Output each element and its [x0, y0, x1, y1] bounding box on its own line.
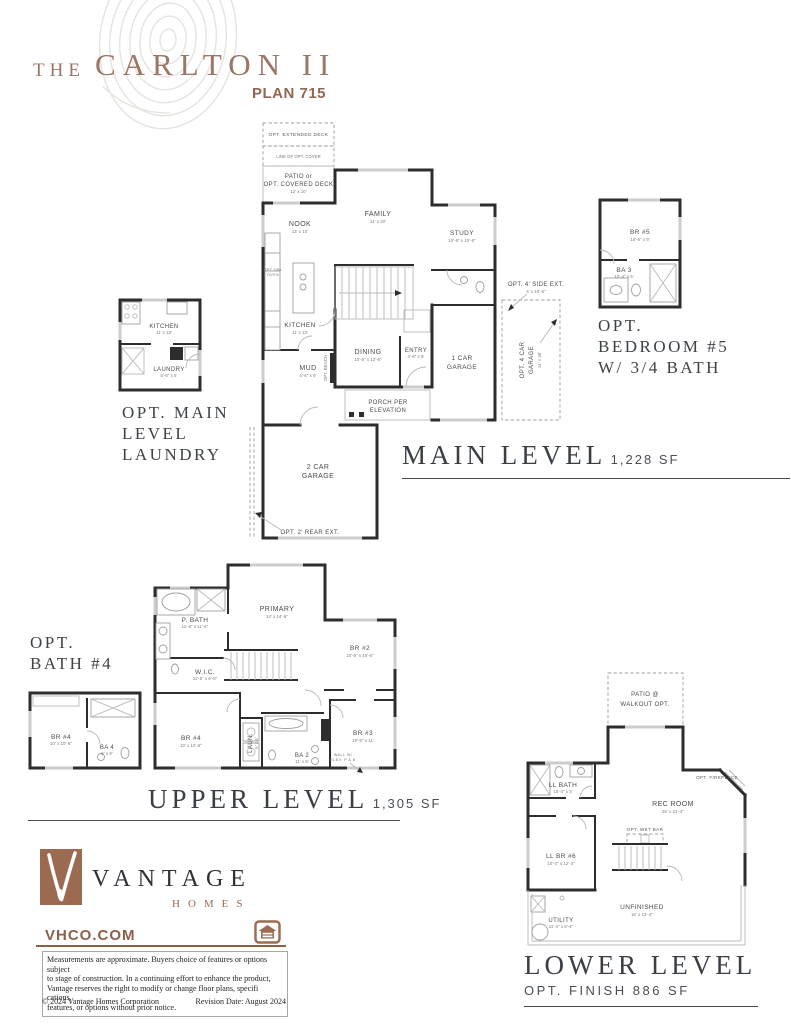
- room-dim-study: 10'-6" x 10'-6": [448, 238, 476, 243]
- main-level-title-block: MAIN LEVEL 1,228 SF: [402, 440, 679, 471]
- bedroom5-inset-plan: BR #5 10'-6" x 9' BA 3 10'-4" x 5': [588, 192, 693, 320]
- bedroom5-inset-caption: OPT. BEDROOM #5 W/ 3/4 BATH: [598, 315, 729, 378]
- room-label-opt-extended-deck: OPT. EXTENDED DECK: [269, 132, 329, 138]
- note-opt-side-ext: OPT. 4' SIDE EXT.: [508, 282, 564, 288]
- main-level-plan: OPT. EXTENDED DECK LINE OF OPT. COVER PA…: [240, 115, 615, 547]
- note-opt-fireplace: OPT. FIREPLACE: [696, 775, 738, 780]
- laundry-inset-plan: KITCHEN 11' x 13' LAUNDRY 5'-6" x 6': [112, 292, 207, 400]
- note-patio-walkout-2: WALKOUT OPT.: [620, 702, 669, 708]
- room-label-porch-2: ELEVATION: [370, 408, 406, 414]
- room-dim-kitchen: 11' x 13': [292, 330, 308, 335]
- bedroom5-inset-ba3-label: BA 3: [616, 267, 631, 274]
- bath4-inset-br4-dim: 10' x 10'-6": [50, 741, 72, 746]
- plan-title-prefix: THE: [33, 60, 85, 82]
- room-label-llbath: LL BATH: [549, 782, 577, 789]
- room-label-patio-1: PATIO or: [285, 174, 312, 180]
- room-label-dining: DINING: [355, 349, 382, 356]
- room-dim-dining: 10'-6" x 12'-6": [354, 357, 382, 362]
- bedroom5-inset-caption-1: OPT.: [598, 315, 729, 336]
- bedroom5-inset-caption-3: W/ 3/4 BATH: [598, 357, 729, 378]
- disclaimer-line-1: Measurements are approximate. Buyers cho…: [47, 955, 283, 974]
- disclaimer-text: Measurements are approximate. Buyers cho…: [42, 951, 288, 1017]
- room-label-pbath: P. BATH: [182, 617, 209, 624]
- bath4-inset-walls: [30, 693, 140, 768]
- copyright-row: © 2024 Vantage Homes Corporation Revisio…: [42, 997, 286, 1006]
- room-dim-pbath: 11'-6" x 11'-6": [182, 624, 209, 629]
- room-dim-unfinished: 16' x 12'-4": [631, 912, 653, 917]
- room-label-br3: BR #3: [353, 730, 373, 737]
- bedroom5-inset-caption-2: BEDROOM #5: [598, 336, 729, 357]
- note-opt-4car-dim: 14' x 38': [537, 352, 542, 368]
- main-level-rule: [402, 478, 790, 479]
- floor-plan-sheet: THE CARLTON II PLAN 715: [0, 0, 791, 1024]
- room-dim-br2: 10'-6" x 10'-6": [346, 653, 374, 658]
- upper-level-rule: [28, 820, 400, 821]
- room-dim-br3: 10'-6" x 11': [352, 738, 374, 743]
- room-dim-patio: 12' x 10': [290, 189, 306, 194]
- room-dim-mud: 5'-6" x 6': [300, 373, 317, 378]
- note-opt-bench: OPT. BENCH: [323, 355, 328, 381]
- disclaimer-line-2: to stage of construction. In a continuin…: [47, 974, 283, 984]
- room-label-br2: BR #2: [350, 645, 370, 652]
- footer-accent-rule: [36, 945, 286, 947]
- room-label-family: FAMILY: [365, 211, 392, 218]
- bath4-inset-br4-label: BR #4: [51, 734, 71, 741]
- note-patio-walkout-1: PATIO @: [631, 692, 659, 698]
- main-level-title: MAIN LEVEL: [402, 440, 606, 470]
- copyright-text: © 2024 Vantage Homes Corporation: [42, 997, 159, 1006]
- website-link[interactable]: VHCO.COM: [45, 927, 136, 944]
- room-label-line-of-opt-cover: LINE OF OPT. COVER: [276, 154, 321, 159]
- note-opt-dbl-oven-1: OPT DBL: [264, 268, 283, 272]
- note-opt-wet-bar: OPT. WET BAR: [627, 827, 664, 832]
- note-opt-rear-ext: OPT. 2' REAR EXT.: [281, 530, 340, 536]
- bedroom5-inset-br5-label: BR #5: [630, 229, 650, 236]
- room-label-1car-2: GARAGE: [447, 364, 477, 371]
- laundry-inset-fixtures: [122, 302, 200, 374]
- bedroom5-inset-br5-dim: 10'-6" x 9': [630, 237, 649, 242]
- note-opt-4car-1: OPT. 4 CAR: [520, 341, 526, 378]
- note-opt-4car-2: GARAGE: [529, 346, 535, 374]
- brand-name: VANTAGE: [92, 866, 252, 893]
- room-label-2car-2: GARAGE: [302, 473, 334, 480]
- room-label-nook: NOOK: [289, 221, 311, 228]
- room-label-primary: PRIMARY: [260, 606, 295, 613]
- laundry-inset-laundry-dim: 5'-6" x 6': [161, 373, 178, 378]
- lower-level-optional-outlines: [608, 673, 683, 844]
- room-label-1car-1: 1 CAR: [451, 355, 472, 362]
- room-label-llbr6: LL BR #6: [546, 853, 576, 860]
- room-dim-llbath: 10'-4" x 5': [553, 789, 572, 794]
- upper-level-plan: BR #4 10' x 10'-6" BA 4 6' x 8': [25, 553, 400, 793]
- plan-number: PLAN 715: [252, 85, 326, 102]
- room-dim-ba2: 11' x 5': [295, 759, 309, 764]
- room-label-porch-1: PORCH PER: [368, 400, 408, 406]
- room-label-br4: BR #4: [181, 735, 201, 742]
- main-level-stairs: [335, 267, 413, 319]
- laundry-inset-caption-1: OPT. MAIN: [122, 402, 229, 423]
- upper-level-stairs: [231, 652, 291, 680]
- room-label-kitchen: KITCHEN: [284, 322, 315, 329]
- room-label-rec: REC ROOM: [652, 801, 694, 808]
- lower-level-rule: [524, 1006, 758, 1007]
- room-label-wic: W.I.C.: [195, 669, 215, 676]
- plan-title: CARLTON II: [95, 47, 336, 83]
- note-wall-elev-2: ELEV. P & B: [330, 758, 356, 762]
- equal-housing-icon: [254, 920, 282, 946]
- room-label-patio-2: OPT. COVERED DECK: [264, 182, 334, 188]
- lower-level-title: LOWER LEVEL: [524, 950, 756, 981]
- bedroom5-inset-ba3-dim: 10'-4" x 5': [614, 274, 633, 279]
- room-dim-wic: 11'-6" x 6'-6": [193, 676, 218, 681]
- laundry-inset-caption-2: LEVEL: [122, 423, 229, 444]
- vantage-logo-mark: [40, 847, 88, 909]
- room-dim-primary: 14' x 14'-6": [266, 614, 288, 619]
- room-dim-rec: 26' x 21'-4": [662, 809, 684, 814]
- laundry-inset-kitchen-dim: 11' x 13': [156, 330, 172, 335]
- room-dim-utility: 11'-4" x 8'-4": [549, 924, 574, 929]
- room-dim-br4: 10' x 10'-6": [180, 743, 202, 748]
- note-opt-side-ext-dim: 4' x 10'-6": [526, 289, 546, 294]
- room-dim-laun: 5' x 6': [254, 737, 259, 748]
- room-label-unfinished: UNFINISHED: [620, 904, 664, 911]
- brand-sub-name: HOMES: [172, 898, 251, 910]
- upper-level-sqft: 1,305 SF: [373, 796, 442, 811]
- upper-level-title: UPPER LEVEL: [148, 784, 368, 814]
- revision-date: Revision Date: August 2024: [196, 997, 286, 1006]
- lower-level-sqft: OPT. FINISH 886 SF: [524, 983, 756, 998]
- laundry-inset-caption-3: LAUNDRY: [122, 444, 229, 465]
- note-opt-dbl-oven-2: OVEN: [267, 273, 279, 277]
- room-label-study: STUDY: [450, 230, 474, 237]
- lower-level-stairs: [619, 846, 661, 870]
- room-dim-entry: 4'-6" x 8': [408, 354, 425, 359]
- room-dim-family: 14' x 20': [370, 219, 386, 224]
- upper-level-title-block: UPPER LEVEL 1,305 SF: [148, 784, 441, 815]
- main-level-sqft: 1,228 SF: [611, 452, 680, 467]
- bath4-inset-ba4-dim: 6' x 8': [101, 751, 112, 756]
- main-level-annotation-arrows: [508, 294, 557, 343]
- room-dim-llbr6: 10'-4" x 12'-4": [547, 861, 575, 866]
- room-label-mud: MUD: [299, 365, 316, 372]
- room-dim-nook: 12' x 10': [292, 229, 308, 234]
- lower-level-plan: PATIO @ WALKOUT OPT. LL BATH 10'-4" x 5'…: [515, 668, 760, 953]
- laundry-inset-caption: OPT. MAIN LEVEL LAUNDRY: [122, 402, 229, 465]
- bedroom5-inset-fixtures: [604, 264, 676, 302]
- room-label-2car-1: 2 CAR: [307, 464, 330, 471]
- lower-level-title-block: LOWER LEVEL OPT. FINISH 886 SF: [524, 950, 756, 998]
- note-wall-elev-1: WALL W/: [334, 753, 353, 757]
